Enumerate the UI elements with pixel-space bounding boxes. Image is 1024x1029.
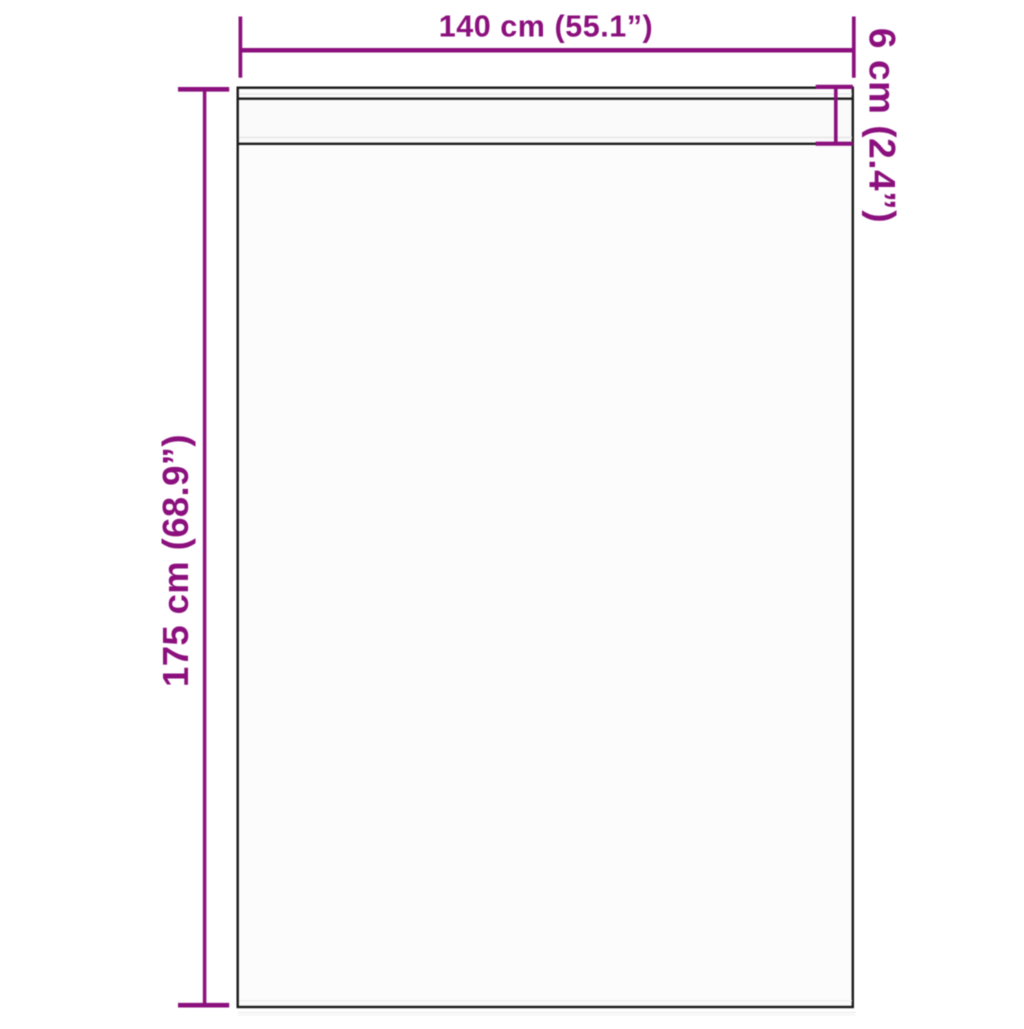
svg-text:6 cm (2.4”): 6 cm (2.4”)	[862, 28, 903, 223]
svg-text:175 cm (68.9”): 175 cm (68.9”)	[155, 434, 196, 687]
svg-text:140 cm (55.1”): 140 cm (55.1”)	[439, 9, 654, 43]
